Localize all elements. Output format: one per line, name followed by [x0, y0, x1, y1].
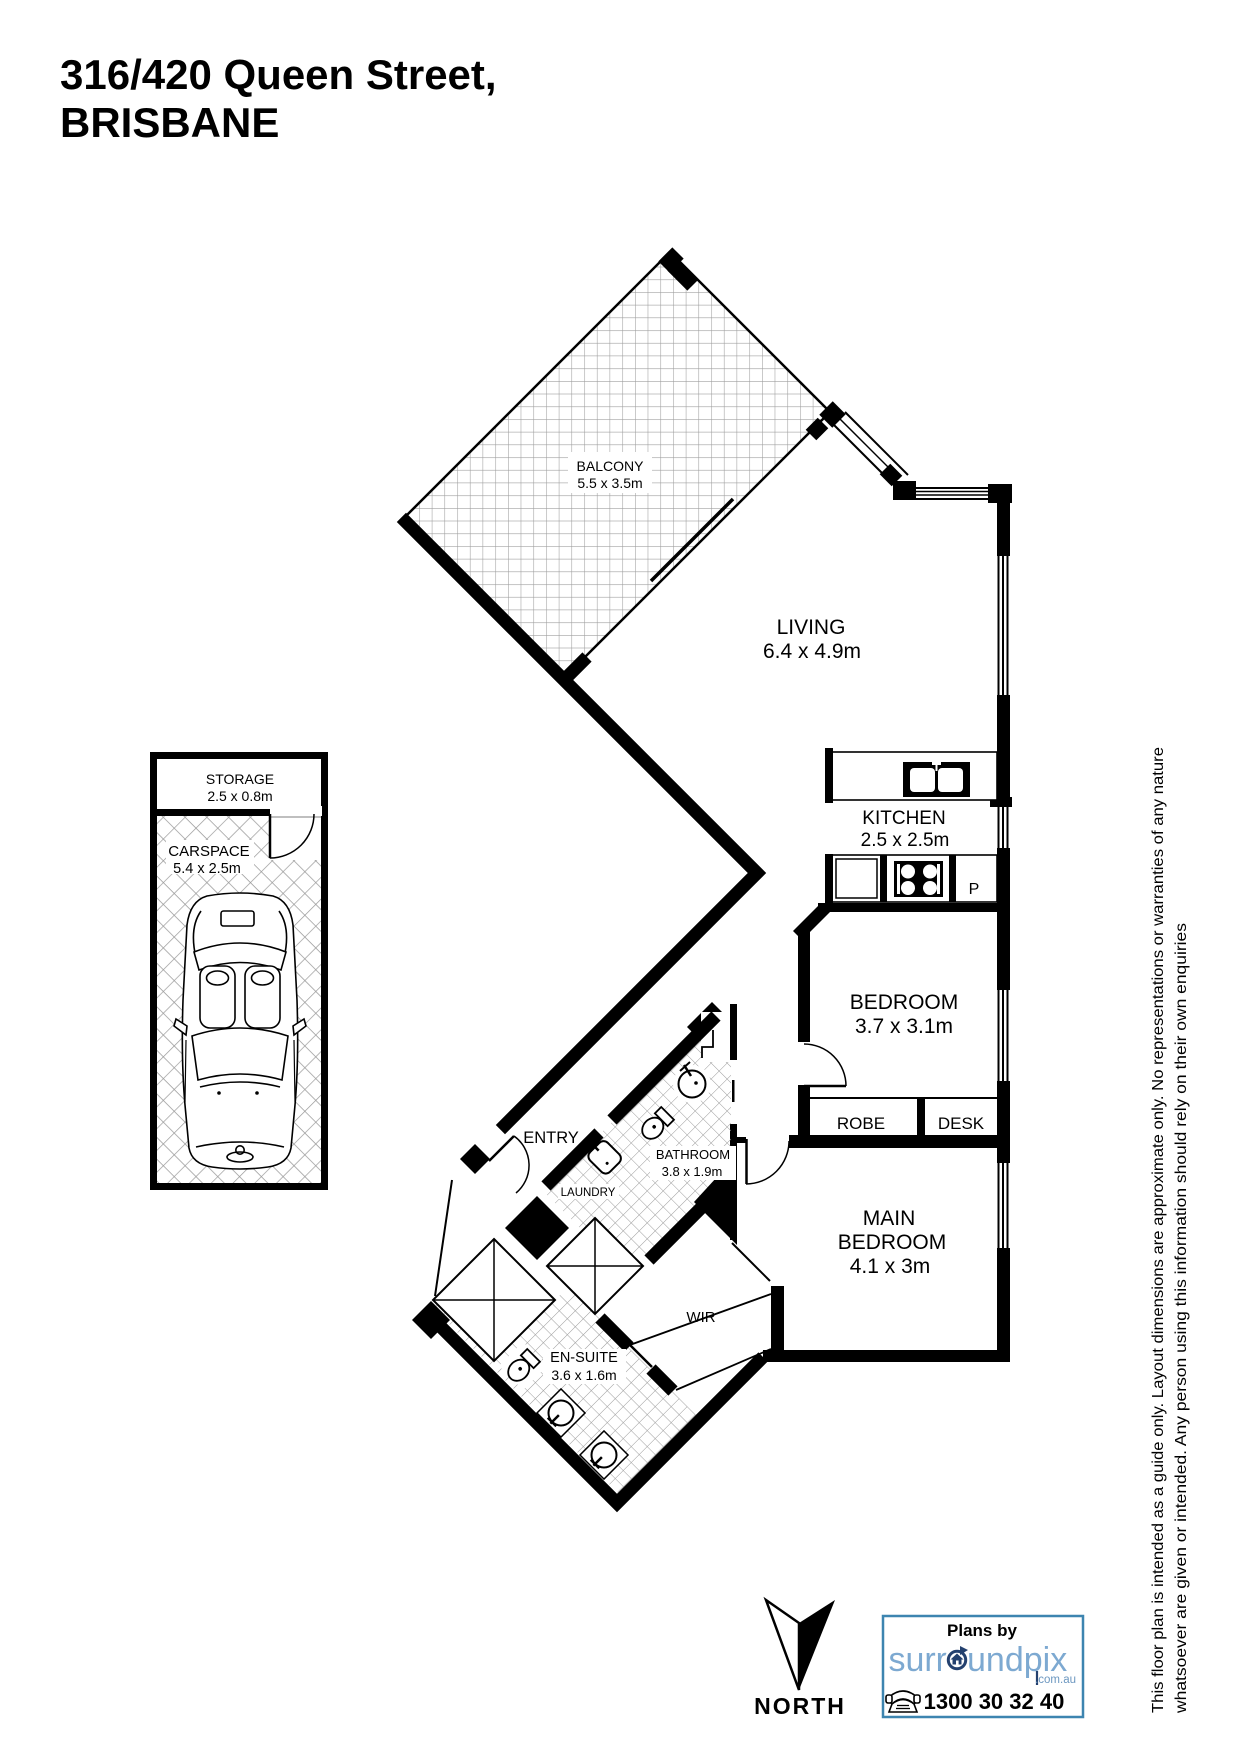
svg-text:P: P	[969, 881, 980, 898]
svg-text:KITCHEN: KITCHEN	[862, 808, 945, 829]
svg-text:surr: surr	[888, 1641, 947, 1679]
svg-text:CARSPACE: CARSPACE	[168, 843, 249, 860]
svg-text:316/420 Queen Street,: 316/420 Queen Street,	[60, 51, 497, 98]
svg-text:Plans by: Plans by	[947, 1621, 1017, 1640]
svg-text:3.8 x 1.9m: 3.8 x 1.9m	[662, 1164, 723, 1179]
svg-text:1300 30 32 40: 1300 30 32 40	[924, 1689, 1065, 1714]
svg-text:2.5 x 0.8m: 2.5 x 0.8m	[207, 788, 272, 804]
svg-text:This floor plan is intended as: This floor plan is intended as a guide o…	[1150, 747, 1167, 1713]
svg-text:.com.au: .com.au	[1035, 1674, 1076, 1686]
svg-text:6.4 x 4.9m: 6.4 x 4.9m	[763, 640, 861, 663]
svg-text:BEDROOM: BEDROOM	[838, 1231, 947, 1254]
svg-text:ROBE: ROBE	[837, 1114, 885, 1133]
svg-text:5.5 x 3.5m: 5.5 x 3.5m	[577, 475, 642, 491]
svg-text:BRISBANE: BRISBANE	[60, 99, 279, 146]
svg-text:LAUNDRY: LAUNDRY	[561, 1187, 616, 1199]
svg-text:5.4 x 2.5m: 5.4 x 2.5m	[173, 861, 241, 877]
svg-text:NORTH: NORTH	[754, 1693, 846, 1719]
svg-text:LIVING: LIVING	[777, 616, 846, 639]
svg-text:EN-SUITE: EN-SUITE	[550, 1350, 618, 1366]
svg-text:BALCONY: BALCONY	[577, 458, 645, 474]
svg-text:4.1 x 3m: 4.1 x 3m	[850, 1255, 931, 1278]
svg-text:3.6 x 1.6m: 3.6 x 1.6m	[551, 1367, 616, 1383]
svg-text:3.7 x 3.1m: 3.7 x 3.1m	[855, 1015, 953, 1038]
svg-text:STORAGE: STORAGE	[206, 771, 274, 787]
svg-text:MAIN: MAIN	[863, 1207, 916, 1230]
svg-text:BATHROOM: BATHROOM	[656, 1147, 730, 1162]
svg-text:BEDROOM: BEDROOM	[850, 991, 959, 1014]
svg-text:2.5 x 2.5m: 2.5 x 2.5m	[861, 830, 950, 851]
svg-text:whatsoever are given or intend: whatsoever are given or intended. Any pe…	[1173, 923, 1190, 1714]
svg-text:WIR: WIR	[686, 1309, 715, 1326]
svg-text:DESK: DESK	[938, 1114, 985, 1133]
svg-text:ENTRY: ENTRY	[523, 1129, 579, 1147]
